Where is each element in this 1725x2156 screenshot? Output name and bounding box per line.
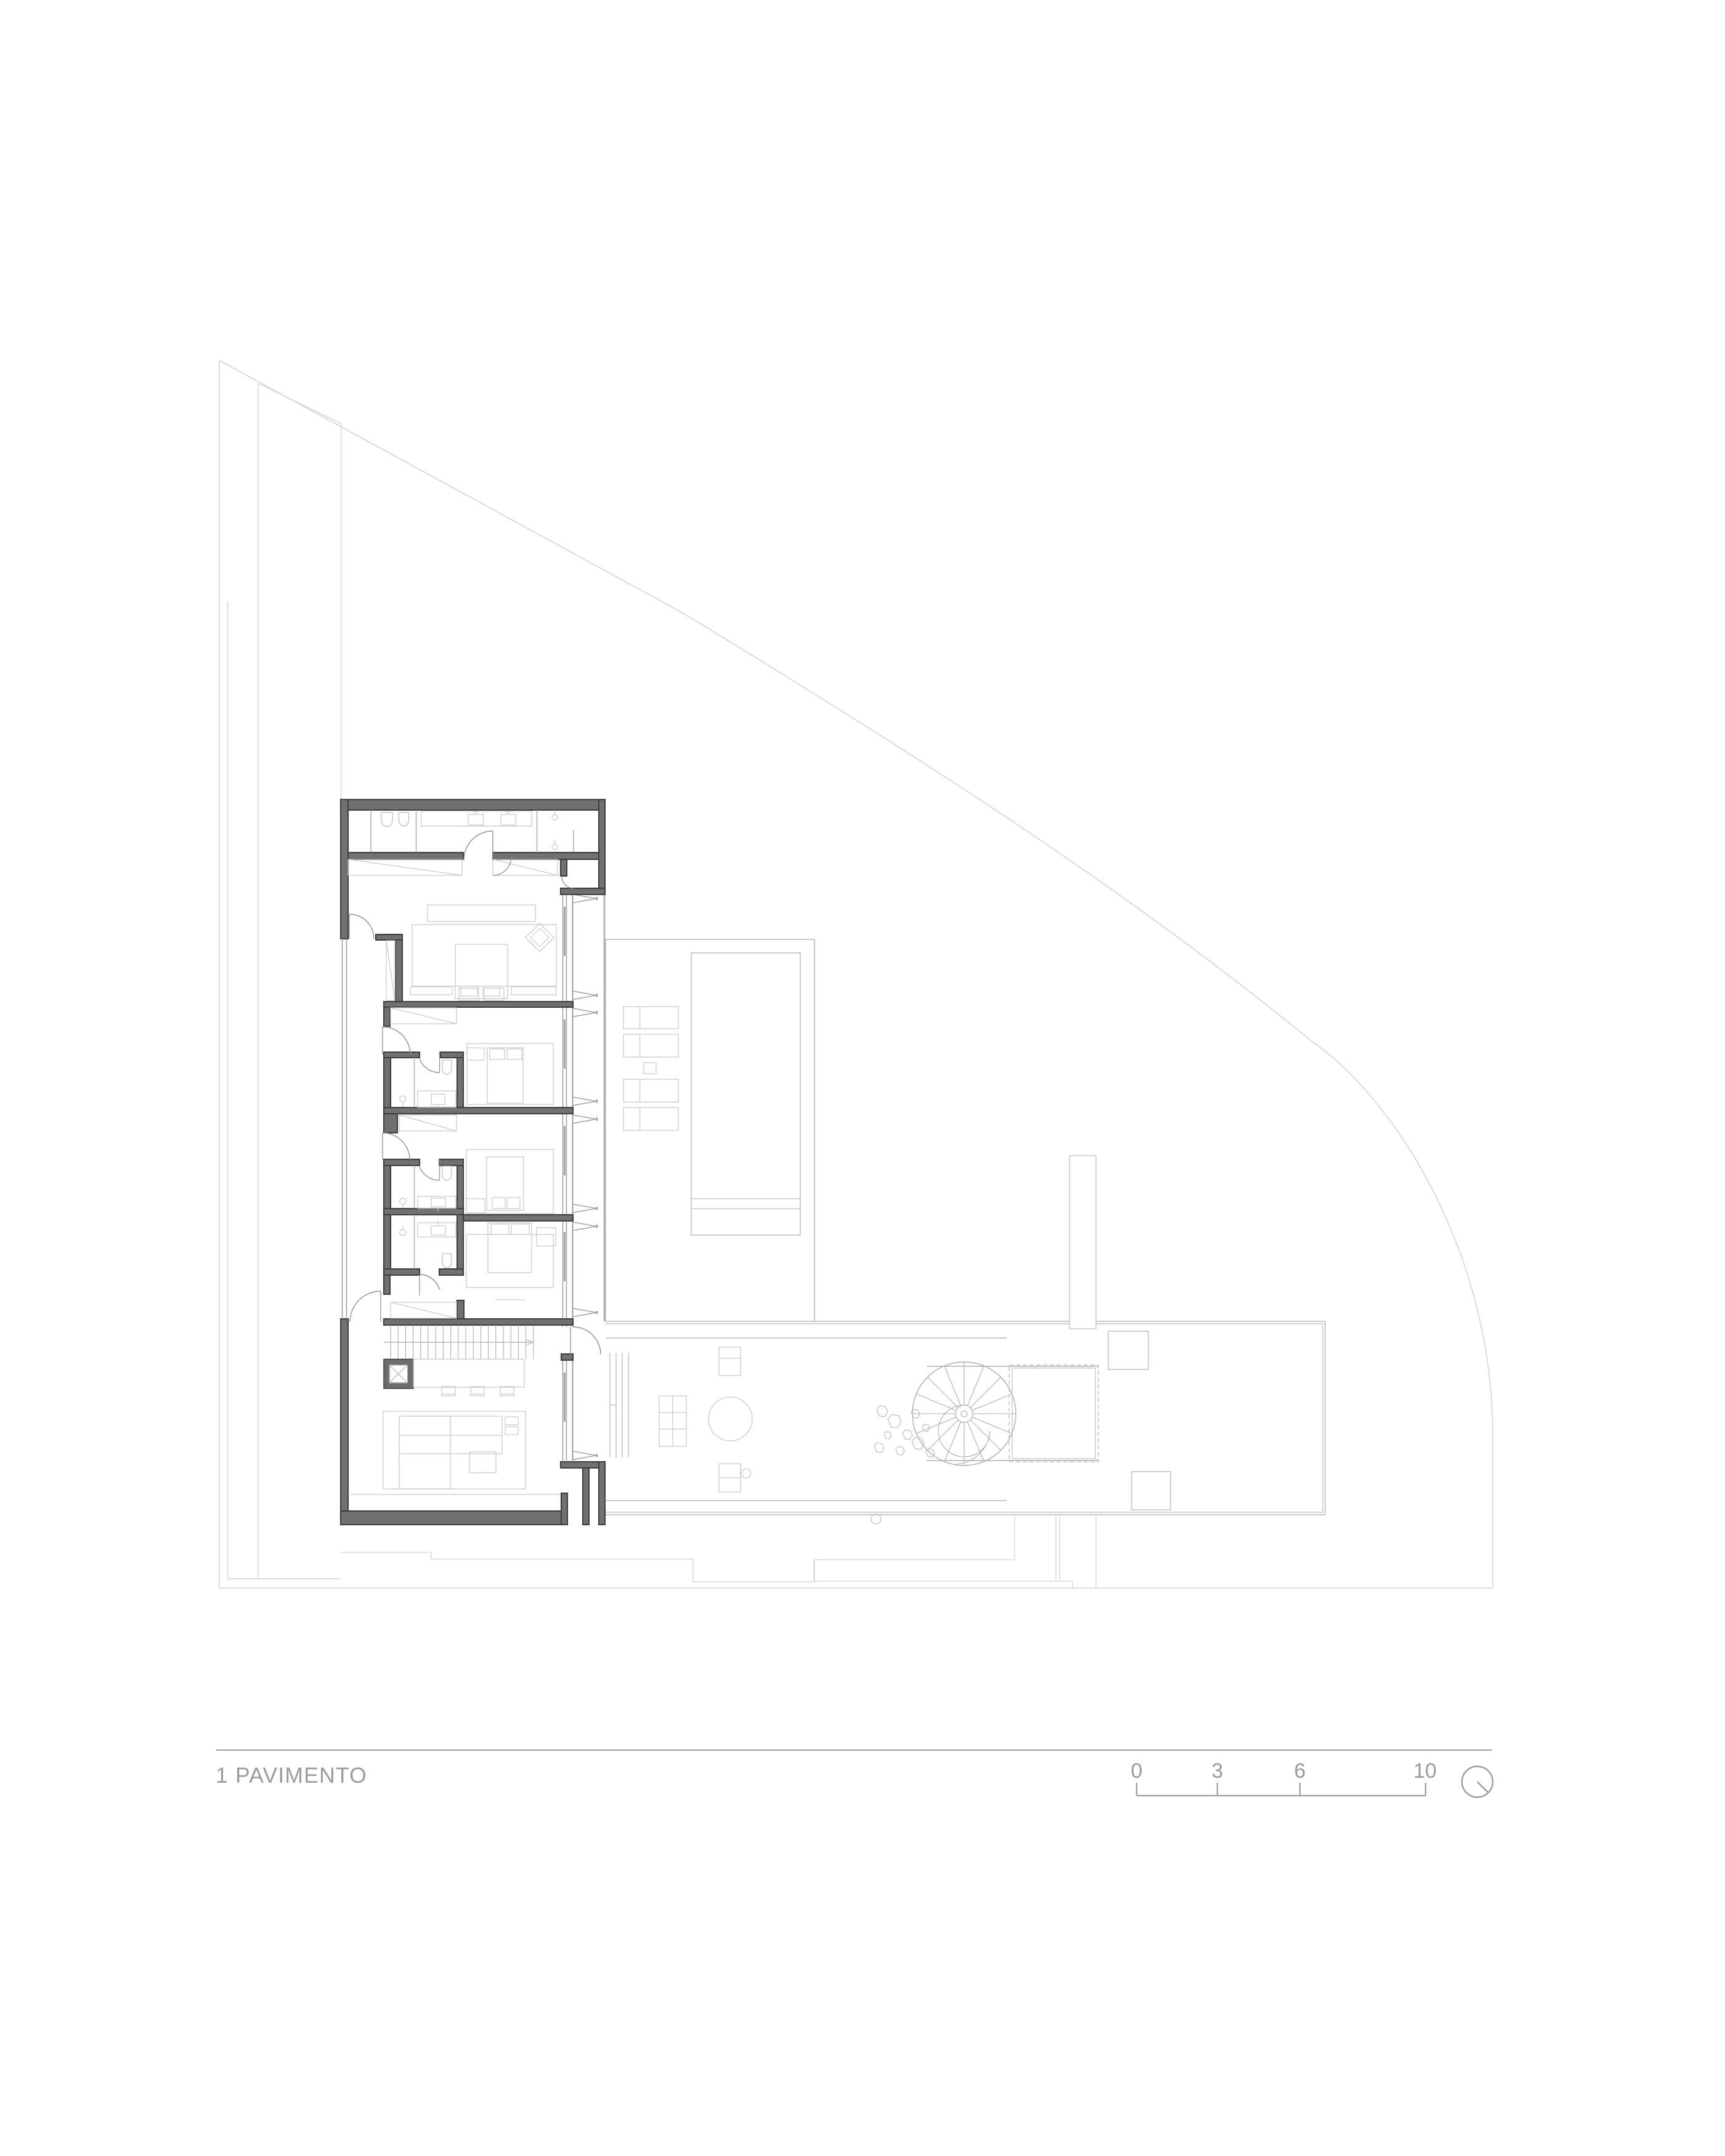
svg-text:6: 6 xyxy=(1294,1759,1306,1783)
svg-text:0: 0 xyxy=(1131,1759,1143,1783)
svg-text:1 PAVIMENTO: 1 PAVIMENTO xyxy=(216,1763,367,1788)
svg-text:10: 10 xyxy=(1413,1759,1437,1783)
svg-text:3: 3 xyxy=(1212,1759,1224,1783)
